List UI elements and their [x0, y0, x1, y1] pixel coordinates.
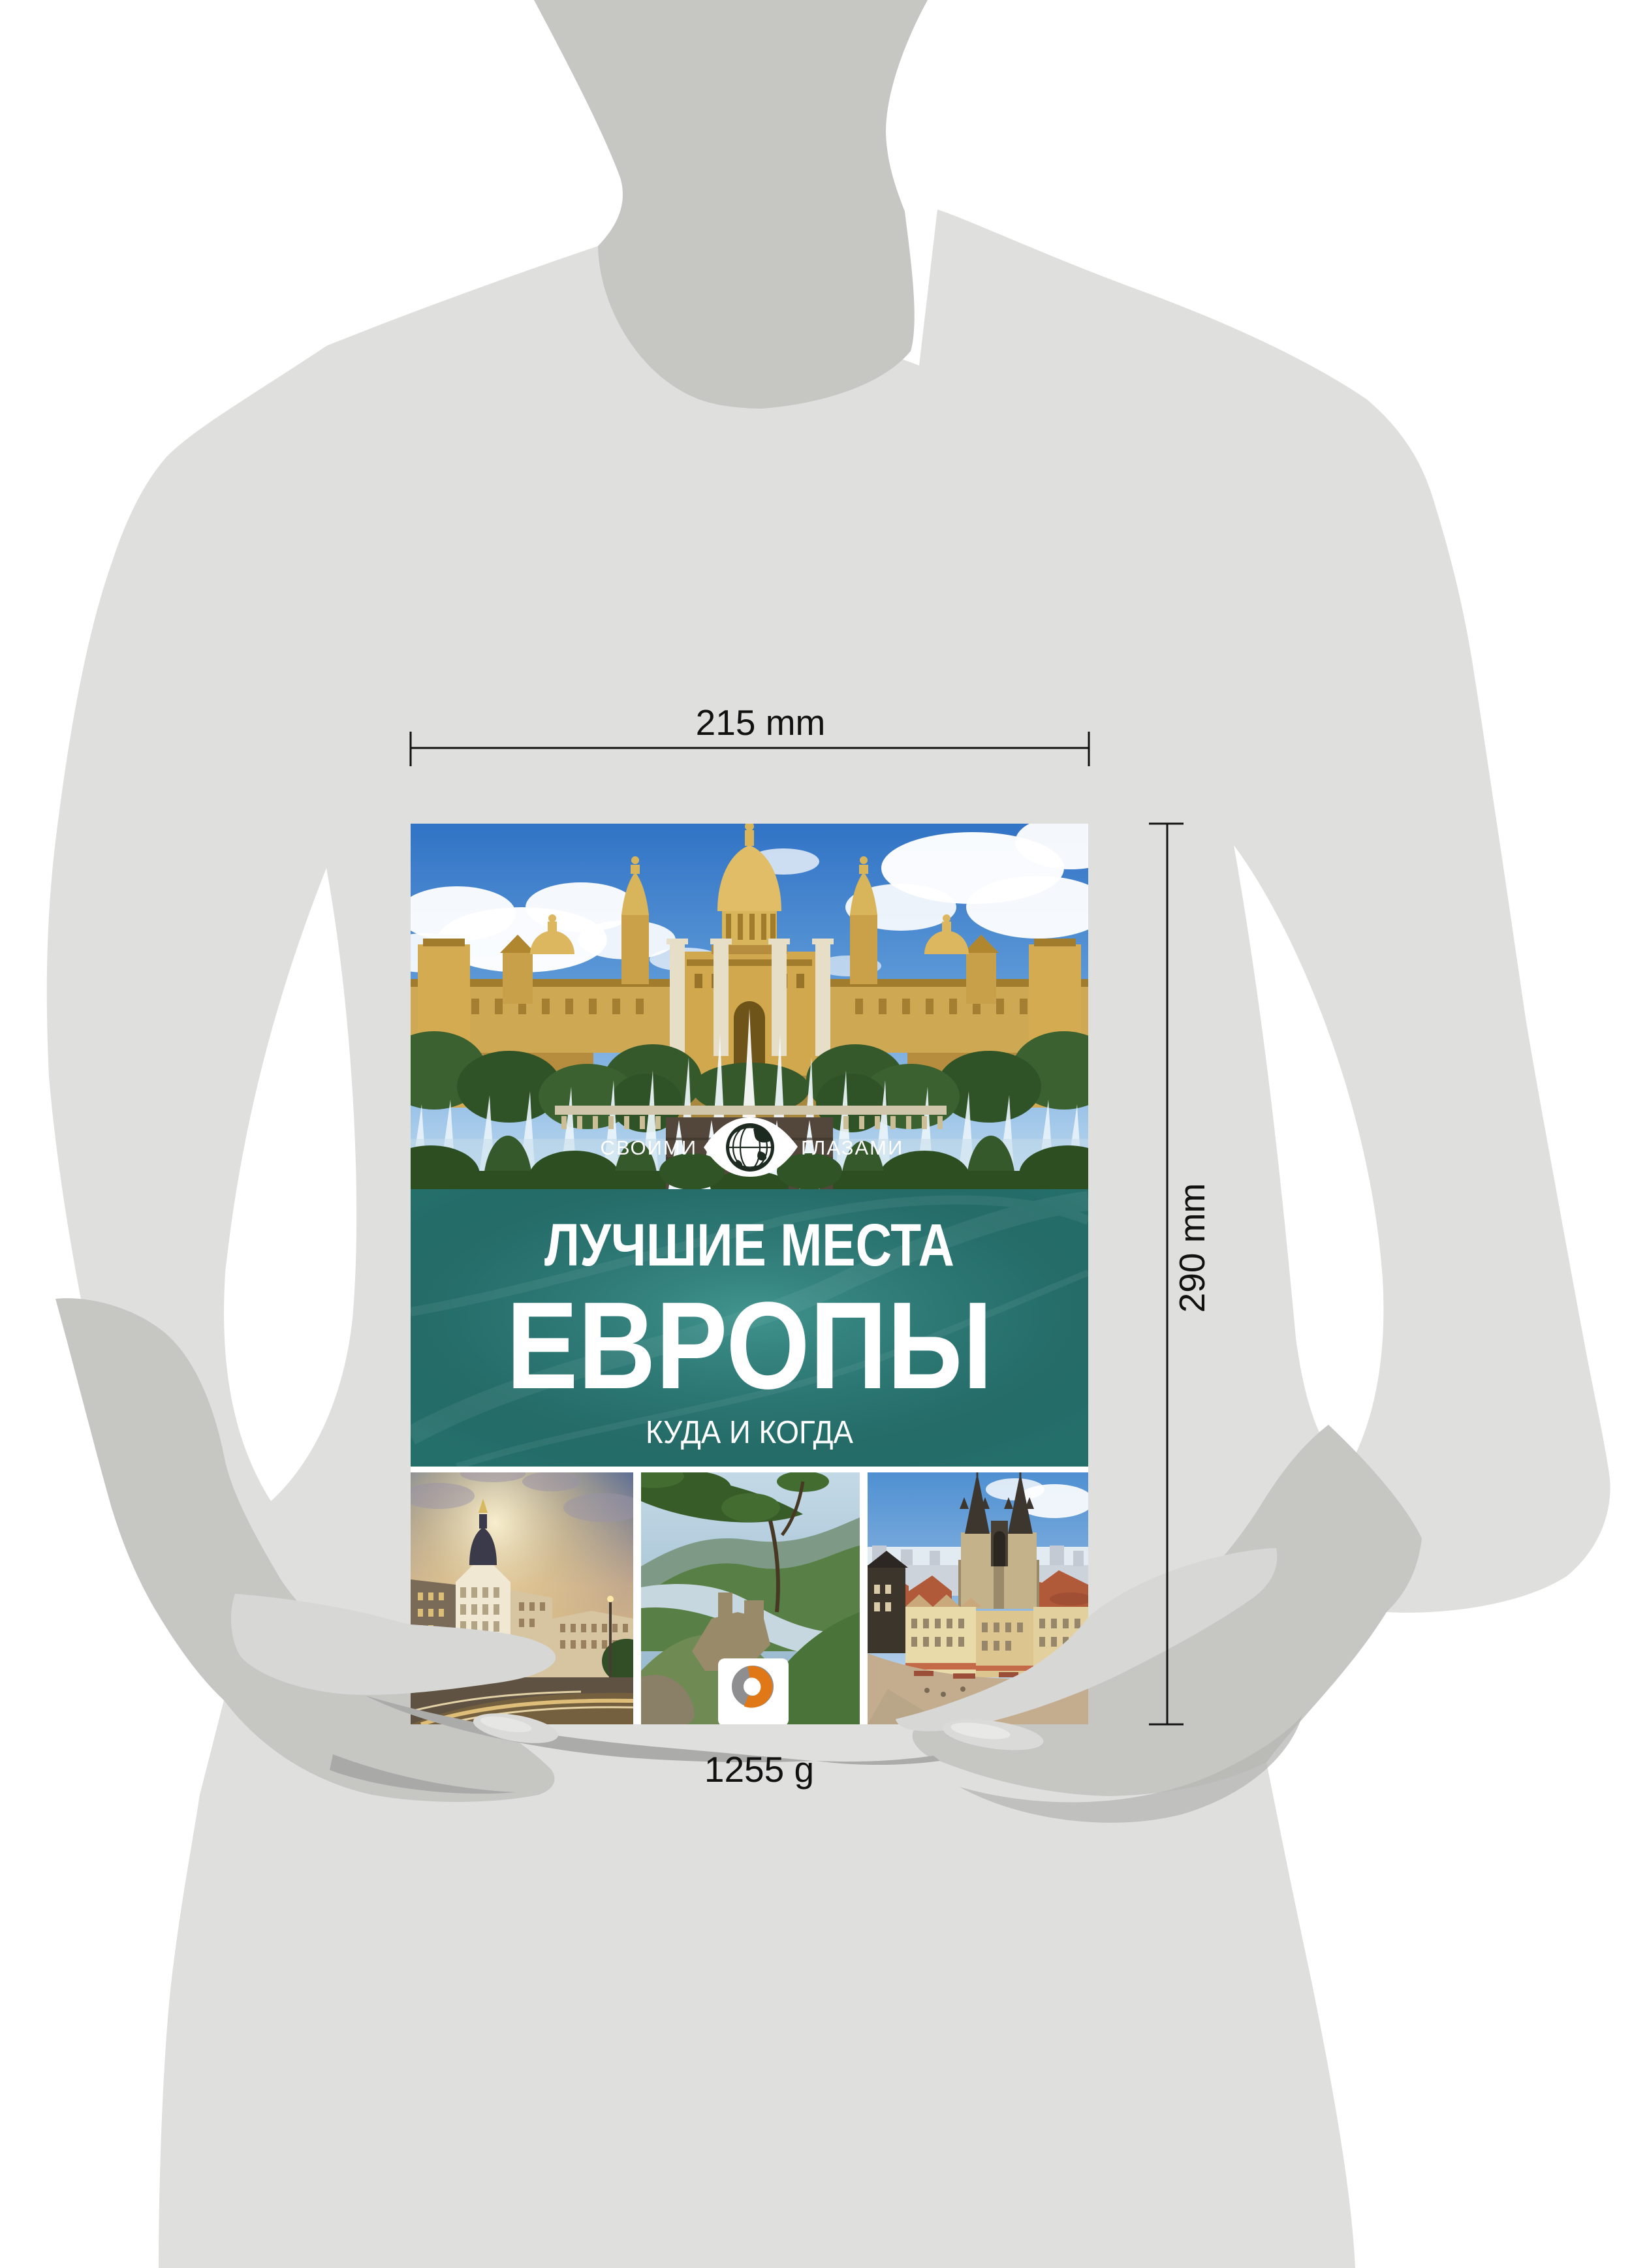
- svg-text:215 mm: 215 mm: [696, 702, 826, 743]
- svg-text:290 mm: 290 mm: [1172, 1183, 1212, 1313]
- svg-text:ЛУЧШИЕ МЕСТА: ЛУЧШИЕ МЕСТА: [544, 1212, 954, 1279]
- svg-text:СВОИМИ: СВОИМИ: [600, 1136, 697, 1159]
- svg-text:1255 g: 1255 g: [704, 1749, 814, 1790]
- svg-text:ГЛАЗАМИ: ГЛАЗАМИ: [801, 1136, 903, 1159]
- svg-text:КУДА И КОГДА: КУДА И КОГДА: [646, 1415, 853, 1450]
- svg-text:ЕВРОПЫ: ЕВРОПЫ: [507, 1277, 993, 1415]
